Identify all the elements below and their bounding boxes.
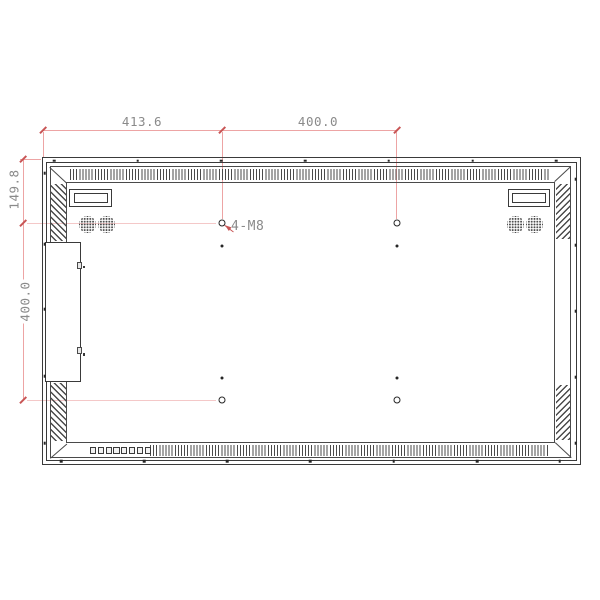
frame-screw <box>43 243 46 246</box>
frame-screw <box>60 460 63 463</box>
pilot-hole <box>221 377 224 380</box>
frame-screw <box>220 159 223 162</box>
handle-left-opening <box>74 193 108 203</box>
cover-latch-nub-top <box>83 266 85 269</box>
frame-screw <box>574 442 577 445</box>
cover-latch-nub-bottom <box>83 353 85 356</box>
pilot-hole <box>395 377 398 380</box>
frame-screw <box>574 244 577 247</box>
speaker-grille-right-1 <box>507 216 524 233</box>
control-button <box>121 447 127 454</box>
control-button <box>145 447 151 454</box>
vesa-mount-hole <box>219 396 226 403</box>
frame-screw <box>309 460 312 463</box>
frame-screw <box>304 159 307 162</box>
control-button <box>90 447 96 454</box>
frame-screw <box>555 159 558 162</box>
vesa-mount-hole <box>393 396 400 403</box>
pilot-hole <box>395 245 398 248</box>
dimension-label-top-width-right: 400.0 <box>296 115 340 128</box>
frame-screw <box>43 375 46 378</box>
dimension-label-left-height-lower: 400.0 <box>18 279 31 323</box>
speaker-grille-left-1 <box>79 216 96 233</box>
frame-screw <box>574 310 577 313</box>
control-button <box>137 447 143 454</box>
dimension-label-top-width-left: 413.6 <box>120 115 164 128</box>
control-button <box>98 447 104 454</box>
hatch-strip-right-top <box>556 184 570 239</box>
handle-right-opening <box>512 193 546 203</box>
frame-screw <box>53 159 56 162</box>
frame-screw <box>43 172 46 175</box>
vesa-hole-spec-label: 4-M8 <box>231 220 264 233</box>
bottom-vent-grille <box>150 445 549 456</box>
speaker-grille-right-2 <box>526 216 543 233</box>
speaker-grille-left-2 <box>98 216 115 233</box>
back-panel-raised-surface <box>66 182 555 443</box>
connector-cover <box>45 242 82 382</box>
frame-screw <box>388 159 391 162</box>
frame-screw <box>392 460 395 463</box>
hatch-strip-left-top <box>51 184 66 241</box>
pilot-hole <box>221 245 224 248</box>
technical-drawing-canvas: 413.6 400.0 149.8 400.0 4-M8 <box>0 0 600 600</box>
cover-latch-bottom <box>77 347 82 354</box>
frame-screw <box>574 178 577 181</box>
control-button-strip <box>90 447 151 454</box>
frame-screw <box>574 376 577 379</box>
hatch-strip-left-bottom <box>51 383 66 441</box>
control-button <box>113 447 119 454</box>
frame-screw <box>471 159 474 162</box>
frame-screw <box>476 460 479 463</box>
frame-screw <box>43 308 46 311</box>
frame-screw <box>43 442 46 445</box>
extension-line-left-edge <box>43 132 44 157</box>
hatch-strip-right-bottom <box>556 385 570 440</box>
control-button <box>129 447 135 454</box>
frame-screw <box>136 159 139 162</box>
cover-latch-top <box>77 262 82 269</box>
top-vent-grille <box>70 169 549 181</box>
frame-screw <box>558 460 561 463</box>
vesa-mount-hole <box>393 220 400 227</box>
dimension-label-left-height-upper: 149.8 <box>7 167 20 211</box>
control-button <box>106 447 112 454</box>
frame-screw <box>143 460 146 463</box>
frame-screw <box>226 460 229 463</box>
